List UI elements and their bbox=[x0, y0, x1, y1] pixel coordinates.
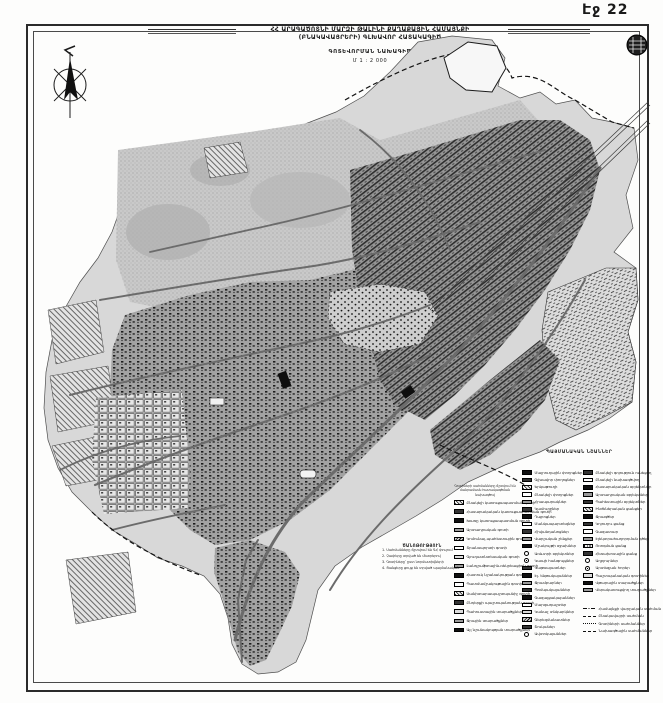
legend-item: Հրապարակներ bbox=[522, 498, 582, 505]
legend-swatch-icon bbox=[583, 500, 593, 505]
legend-item-label: Վարչական շենքեր bbox=[535, 537, 573, 541]
legend-item: Վարչական շենքեր bbox=[522, 535, 582, 542]
legend-item: Համայնքի վարչական սահման bbox=[583, 605, 645, 613]
legend-item-label: Սանիտարապաշտպանիչ գոտի bbox=[467, 592, 531, 596]
legend-swatch-icon bbox=[454, 628, 464, 633]
legend-item-label: Կոյուղու ցանց bbox=[596, 522, 625, 526]
legend-swatch-icon bbox=[522, 470, 532, 475]
legend-item-label: Դպրոցներ bbox=[535, 515, 556, 519]
legend-item: Հեռախոսային ցանց bbox=[583, 550, 645, 557]
legend-swatch-icon bbox=[522, 485, 532, 490]
legend-line-swatch-icon bbox=[583, 623, 596, 624]
legend-swatch-icon bbox=[454, 591, 464, 596]
legend-item: Դպրոցներ bbox=[522, 513, 582, 520]
legend-item: Հիվանդանոցներ bbox=[522, 528, 582, 535]
legend-item: Մարզադաշտեր bbox=[522, 601, 582, 608]
legend-item: Գերեզմանատներ bbox=[522, 616, 582, 623]
legend-item-label: Հիվանդանոցներ bbox=[535, 530, 569, 534]
legend-swatch-icon bbox=[522, 544, 532, 549]
legend-item: Մանկապարտեզներ bbox=[522, 520, 582, 527]
legend-swatch-icon bbox=[454, 573, 464, 578]
legend-item-label: Մարզադաշտեր bbox=[535, 603, 567, 607]
legend-item: Արտադրական գոտի bbox=[454, 525, 520, 534]
legend-swatch-icon bbox=[583, 522, 593, 527]
annotation-note: ԾԱՆՈԹՈՒԹՅՈՒՆ 1. Սահմանները ճշտվում են ԳՀ… bbox=[382, 543, 462, 572]
legend-item-label: Գյուղատնտեսական գոտի bbox=[467, 555, 520, 559]
legend-swatch-icon bbox=[454, 518, 464, 523]
legend-item-label: Պահուստային տարածքներ bbox=[467, 610, 523, 614]
legend-item: Պահեստային օբյեկտներ bbox=[583, 498, 645, 505]
legend-item-label: Պաշտպանական գոտիներ bbox=[596, 574, 650, 578]
legend-swatch-icon bbox=[524, 632, 529, 637]
legend-swatch-icon bbox=[454, 609, 464, 614]
legend-item: Պոմպակայաններ bbox=[522, 587, 582, 594]
legend-item-label: Արտեզյան հորեր bbox=[596, 566, 630, 570]
legend-item-label: Բնակավայրի սահման bbox=[599, 614, 644, 618]
legend-item-label: Ջրամբարներ bbox=[535, 581, 562, 585]
legend-column-boundary-lines: Համայնքի վարչական սահման Բնակավայրի սահմ… bbox=[583, 605, 645, 635]
legend-swatch-icon bbox=[454, 582, 464, 587]
legend-item-label: Հեռախոսային ցանց bbox=[596, 552, 637, 556]
legend-swatch-icon bbox=[583, 507, 593, 512]
legend-item-label: Վթարային տարածքներ bbox=[596, 581, 644, 585]
legend-swatch-icon bbox=[583, 485, 593, 490]
legend-item: Երկաթուղի bbox=[522, 484, 582, 491]
legend-item: Տրանսպորտի գոտի bbox=[454, 543, 520, 552]
legend-item: Խառը կառուցապատման գոտի bbox=[454, 516, 520, 525]
legend-note: Գոտիների սահմանները ճշտվում ենմանրամասն … bbox=[454, 484, 516, 497]
legend-swatch-icon bbox=[583, 544, 593, 549]
legend-title: ՊԱՅՄԱՆԱԿԱՆ ՆՇԱՆՆԵՐ bbox=[544, 450, 614, 455]
legend-item-label: Էլ. ենթակայաններ bbox=[535, 574, 573, 578]
legend-item: Կաթսայատներ bbox=[522, 564, 582, 571]
legend-swatch-icon bbox=[454, 500, 464, 505]
legend-item: Հատուկ նշանակության գոտի bbox=[454, 571, 520, 580]
legend-swatch-icon bbox=[522, 573, 532, 578]
legend-swatch-icon bbox=[454, 537, 464, 542]
legend-item-label: Գազալցակայաններ bbox=[535, 596, 575, 600]
legend-item: Վթարային տարածքներ bbox=[583, 579, 645, 586]
legend-item: Մայրուղային փողոցներ bbox=[522, 469, 582, 476]
legend-column-zones: Բնակելի կառուցապատման գոտի Հասարակական կ… bbox=[454, 498, 520, 634]
legend-item: Կանաչ տնկարկներ bbox=[522, 609, 582, 616]
legend-column-objects: Մայրուղային փողոցներ Գլխավոր փողոցներ Եր… bbox=[522, 469, 582, 638]
legend-swatch-icon bbox=[522, 537, 532, 542]
legend-item-label: Կապի հանգույցներ bbox=[535, 559, 575, 563]
legend-item-label: Ջրային տարածքներ bbox=[467, 619, 509, 623]
legend-item-label: Ավտոկայաններ bbox=[535, 632, 567, 636]
legend-item-label: Բնակելի փողոցներ bbox=[535, 493, 574, 497]
legend-swatch-icon bbox=[522, 478, 532, 483]
legend-item: Սանիտարապաշտպանիչ գոտի bbox=[454, 589, 520, 598]
legend-item-label: Կանաչ տնկարկներ bbox=[535, 610, 575, 614]
legend-item: Ինժեներական ցանցեր bbox=[583, 506, 645, 513]
legend-item-label: Կոմունալ-պահեստային գոտի bbox=[467, 537, 527, 541]
legend-item: Բնակելի նախագծվող bbox=[583, 476, 645, 483]
compass-rose-icon bbox=[54, 46, 86, 118]
legend-swatch-icon bbox=[583, 573, 593, 578]
legend-item: Կոմունալ-պահեստային գոտի bbox=[454, 534, 520, 543]
legend-swatch-icon bbox=[522, 529, 532, 534]
legend-item: Գյուղատնտեսական գոտի bbox=[454, 553, 520, 562]
legend-item: Աղբյուրներ bbox=[583, 557, 645, 564]
legend-item-label: Աղբյուրներ bbox=[596, 559, 618, 563]
legend-item-label: Արտադրական գոտի bbox=[467, 528, 509, 532]
legend-item: Բնակելի կառուցապատման գոտի bbox=[454, 498, 520, 507]
legend-swatch-icon bbox=[583, 514, 593, 519]
legend-note-line: մանրամասն հատակագծման նախագծով bbox=[454, 488, 516, 497]
legend-item: Պատմամշակութային գոտի bbox=[454, 580, 520, 589]
legend-item-label: Հրապարակներ bbox=[535, 500, 567, 504]
legend-item-label: Մշակույթի օջախներ bbox=[535, 544, 577, 548]
legend-item-label: Պոմպակայաններ bbox=[535, 588, 571, 592]
legend-item: Էլեկտրահաղորդման գծեր bbox=[583, 535, 645, 542]
legend-line-swatch-icon bbox=[583, 608, 596, 609]
legend-item-label: Ոռոգման ցանց bbox=[596, 544, 627, 548]
legend-item: Բնակավայրի սահման bbox=[583, 613, 645, 621]
legend-swatch-icon bbox=[522, 500, 532, 505]
legend-item: Կամուրջներ bbox=[522, 506, 582, 513]
map-sheet: Էջ 22 ՀՀ ԱՐԱԳԱԾՈՏՆԻ ՄԱՐԶԻ ԹԱԼԻՆԻ ՔԱՂԱՔԱՅ… bbox=[0, 0, 663, 703]
legend-item-label: Տրանսպորտի գոտի bbox=[467, 546, 507, 550]
legend-swatch-icon bbox=[454, 619, 464, 624]
legend-item-label: Էլեկտրահաղորդման գծեր bbox=[596, 537, 649, 541]
legend-item-label: Պատմամշակութային գոտի bbox=[467, 582, 523, 586]
legend-item: Գազալցակայաններ bbox=[522, 594, 582, 601]
legend-swatch-icon bbox=[522, 617, 532, 622]
legend-swatch-icon bbox=[583, 588, 593, 593]
legend-item-label: Վերակառուցվող տարածքներ bbox=[596, 588, 656, 592]
legend-item: Կապի հանգույցներ bbox=[522, 557, 582, 564]
legend-item: Պահուստային տարածքներ bbox=[454, 607, 520, 616]
legend-item-label: Մանկապարտեզներ bbox=[535, 522, 576, 526]
legend-item: Առևտրի օբյեկտներ bbox=[522, 550, 582, 557]
legend-column-networks: Բնակելի գոյություն ունեցող Բնակելի նախագ… bbox=[583, 469, 645, 594]
legend-item: Հասարակական օբյեկտներ bbox=[583, 484, 645, 491]
legend-item: Մշակույթի օջախներ bbox=[522, 542, 582, 549]
legend-swatch-icon bbox=[522, 581, 532, 586]
legend-line-swatch-icon bbox=[583, 631, 596, 632]
legend-item: Գազատար bbox=[583, 528, 645, 535]
legend-item-label: Բնակելի նախագծվող bbox=[596, 478, 640, 482]
legend-swatch-icon bbox=[522, 492, 532, 497]
legend-item: Ոռոգման ցանց bbox=[583, 542, 645, 549]
legend-swatch-icon bbox=[522, 603, 532, 608]
legend-item-label: Մայրուղային փողոցներ bbox=[535, 471, 583, 475]
legend-item-label: Կաթսայատներ bbox=[535, 566, 566, 570]
legend-swatch-icon bbox=[583, 581, 593, 586]
legend-item-label: Երկաթուղի bbox=[535, 485, 558, 489]
legend-item: Հասարակական կառուցապատման գոտի bbox=[454, 507, 520, 516]
legend-swatch-icon bbox=[454, 528, 464, 533]
legend-item: Ջրային տարածքներ bbox=[454, 616, 520, 625]
legend-item: Բնակելի գոյություն ունեցող bbox=[583, 469, 645, 476]
legend-swatch-icon bbox=[585, 566, 590, 571]
annotation-item: 4. Ցանցերը ցույց են տրված պայմանական bbox=[382, 566, 462, 572]
legend-swatch-icon bbox=[583, 478, 593, 483]
legend-item: Ավտոկայաններ bbox=[522, 631, 582, 638]
legend-item: Ջրագծեր bbox=[583, 513, 645, 520]
legend-item: Գոտիների սահմաններ bbox=[583, 620, 645, 628]
legend-swatch-icon bbox=[522, 588, 532, 593]
legend-item-label: Նախագծային սահմաններ bbox=[599, 629, 653, 633]
legend-item-label: Շուկաներ bbox=[535, 625, 555, 629]
legend-item: Լանդշաֆտային-ռեկրեացիոն գոտի bbox=[454, 562, 520, 571]
legend-item: Ջրամբարներ bbox=[522, 579, 582, 586]
legend-item: Պաշտպանական գոտիներ bbox=[583, 572, 645, 579]
legend-item-label: Բնակելի գոյություն ունեցող bbox=[596, 471, 652, 475]
legend-item: Գլխավոր փողոցներ bbox=[522, 476, 582, 483]
legend-item-label: Գերեզմանատներ bbox=[535, 618, 571, 622]
legend-item: Այլ նշանակության տարածքներ bbox=[454, 625, 520, 634]
legend-swatch-icon bbox=[454, 600, 464, 605]
legend-swatch-icon bbox=[522, 566, 532, 571]
legend-swatch-icon bbox=[524, 558, 529, 563]
legend-item-label: Խառը կառուցապատման գոտի bbox=[467, 519, 531, 523]
legend-swatch-icon bbox=[583, 551, 593, 556]
legend-item-label: Համայնքի վարչական սահման bbox=[599, 607, 661, 611]
legend-item: Բնակելի փողոցներ bbox=[522, 491, 582, 498]
legend-item: Վերակառուցվող տարածքներ bbox=[583, 587, 645, 594]
legend-line-swatch-icon bbox=[583, 616, 596, 617]
legend-swatch-icon bbox=[583, 492, 593, 497]
legend-item-label: Առևտրի օբյեկտներ bbox=[535, 552, 575, 556]
legend-item-label: Այլ նշանակության տարածքներ bbox=[467, 628, 530, 632]
legend-swatch-icon bbox=[583, 529, 593, 534]
legend-item: Ընդերքի պաշտպանության գոտի bbox=[454, 598, 520, 607]
legend-swatch-icon bbox=[522, 610, 532, 615]
legend-swatch-icon bbox=[583, 470, 593, 475]
legend-swatch-icon bbox=[522, 595, 532, 600]
legend-item: Կոյուղու ցանց bbox=[583, 520, 645, 527]
legend-item: Արտադրական օբյեկտներ bbox=[583, 491, 645, 498]
legend-item-label: Գլխավոր փողոցներ bbox=[535, 478, 575, 482]
legend-item-label: Արտադրական օբյեկտներ bbox=[596, 493, 649, 497]
legend-item-label: Գոտիների սահմաններ bbox=[599, 622, 645, 626]
legend-swatch-icon bbox=[454, 509, 464, 514]
legend-item-label: Հասարակական օբյեկտներ bbox=[596, 485, 652, 489]
legend-item: Արտեզյան հորեր bbox=[583, 564, 645, 571]
round-seal-icon bbox=[627, 35, 647, 55]
legend-item-label: Կամուրջներ bbox=[535, 507, 560, 511]
legend-item-label: Ջրագծեր bbox=[596, 515, 615, 519]
legend-swatch-icon bbox=[522, 625, 532, 630]
legend-item-label: Հատուկ նշանակության գոտի bbox=[467, 573, 528, 577]
legend-swatch-icon bbox=[524, 551, 529, 556]
legend-item: Շուկաներ bbox=[522, 623, 582, 630]
legend-item: Նախագծային սահմաններ bbox=[583, 628, 645, 636]
legend-swatch-icon bbox=[522, 507, 532, 512]
legend-item-label: Պահեստային օբյեկտներ bbox=[596, 500, 646, 504]
legend-item: Էլ. ենթակայաններ bbox=[522, 572, 582, 579]
east-field-parcels bbox=[542, 268, 638, 430]
legend-swatch-icon bbox=[585, 558, 590, 563]
legend-swatch-icon bbox=[583, 537, 593, 542]
legend-swatch-icon bbox=[522, 522, 532, 527]
legend-item-label: Ինժեներական ցանցեր bbox=[596, 507, 642, 511]
legend-swatch-icon bbox=[522, 514, 532, 519]
legend-item-label: Գազատար bbox=[596, 530, 618, 534]
